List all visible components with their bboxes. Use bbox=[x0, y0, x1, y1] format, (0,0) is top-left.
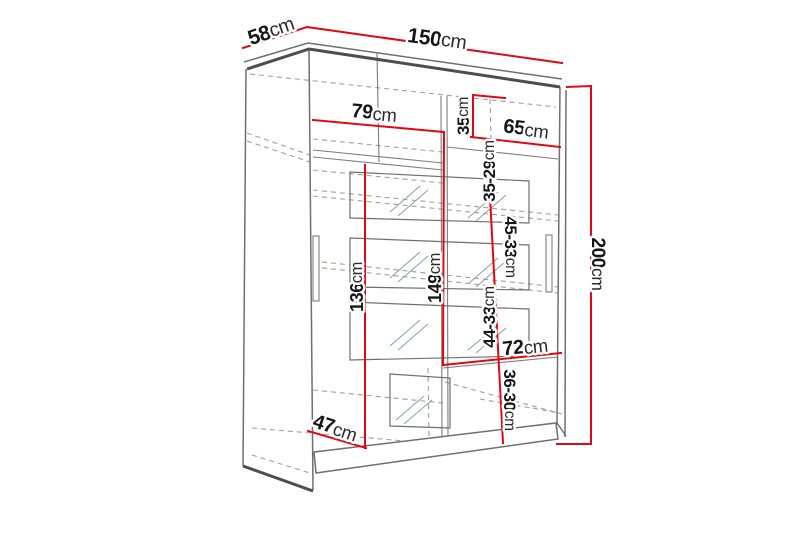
dim-label-inner-height-left-136cm: 136cm bbox=[347, 262, 367, 312]
dim-label-inner-depth-47cm: 47cm bbox=[310, 411, 360, 446]
hidden-edge-dashed-13 bbox=[252, 455, 310, 473]
dim-label-width-150cm: 150cm bbox=[406, 24, 468, 55]
dim-label-depth-58cm: 58cm bbox=[245, 12, 298, 49]
dim-label-top-shelf-35cm: 35cm bbox=[454, 97, 473, 135]
dim-label-inner-height-149cm: 149cm bbox=[425, 253, 445, 303]
mirror-hatch-12 bbox=[396, 396, 424, 420]
dim-label-shelf-gap-36-30cm: 36-30cm bbox=[501, 369, 520, 430]
structure-edge-0 bbox=[244, 43, 562, 79]
structure-edge-thick-1 bbox=[243, 466, 313, 491]
line-149cm bbox=[443, 132, 444, 365]
structure-thin-1 bbox=[313, 157, 443, 170]
hidden-edge-dashed-9 bbox=[490, 99, 491, 138]
dim-label-inner-width-left-79cm: 79cm bbox=[350, 100, 397, 126]
wardrobe-dimension-diagram: 58cm150cm79cm35cm65cm35-29cm45-33cm136cm… bbox=[0, 0, 800, 533]
mirror-hatch-0 bbox=[390, 186, 420, 212]
structure-thin-2 bbox=[447, 147, 558, 159]
structure-edge-3 bbox=[557, 87, 560, 423]
dim-label-shelf-gap-44-33cm: 44-33cm bbox=[480, 286, 499, 347]
line-200cm bbox=[557, 86, 591, 444]
structure-edge-4 bbox=[565, 90, 566, 437]
hidden-edge-dashed-3 bbox=[313, 139, 443, 152]
mirror-hatch-13 bbox=[404, 400, 432, 424]
diagram-stage: 58cm150cm79cm35cm65cm35-29cm45-33cm136cm… bbox=[0, 0, 800, 533]
structure-edge-thick-0 bbox=[247, 49, 560, 87]
dim-label-inner-width-right-65cm: 65cm bbox=[502, 115, 550, 142]
hidden-edge-dashed-4 bbox=[313, 170, 443, 183]
mirror-hatch-8 bbox=[390, 320, 420, 346]
line-35cm bbox=[473, 95, 505, 137]
mirror-hatch-4 bbox=[390, 252, 420, 278]
door-handle-1 bbox=[546, 235, 552, 292]
door-handle-0 bbox=[313, 236, 319, 301]
dim-label-bottom-shelf-72cm: 72cm bbox=[501, 334, 548, 361]
mirror-hatch-1 bbox=[398, 190, 428, 216]
mirror-panel-3 bbox=[390, 374, 450, 428]
dim-label-shelf-gap-35-29cm: 35-29cm bbox=[480, 140, 499, 201]
mirror-hatch-7 bbox=[476, 261, 506, 287]
structure-thin-5 bbox=[447, 96, 448, 442]
structure-edge-1 bbox=[243, 69, 246, 466]
dim-label-shelf-gap-45-33cm: 45-33cm bbox=[502, 216, 521, 277]
structure-thin-0 bbox=[313, 150, 443, 163]
mirror-hatch-9 bbox=[398, 324, 428, 350]
dim-label-height-200cm: 200cm bbox=[588, 237, 609, 290]
